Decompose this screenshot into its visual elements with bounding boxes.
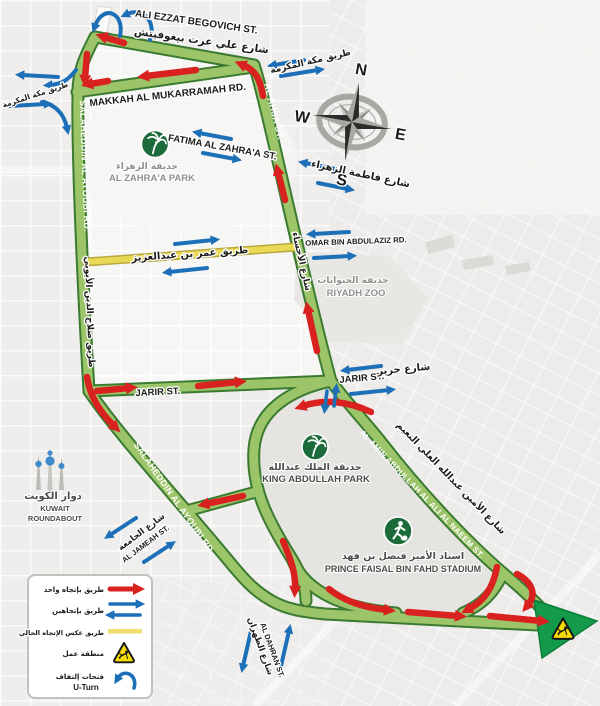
street-label-jarir-en-west: JARIR ST. bbox=[135, 386, 180, 399]
legend-u-turn-label-ar: فتحات إلتفاف bbox=[56, 673, 105, 681]
place-label-kuwait-ar: دوار الكويت bbox=[24, 491, 82, 502]
legend: طريق بإتجاه واحد طريق بإتجاهين طريق عكس … bbox=[19, 575, 152, 698]
place-label-stadium-ar: استاد الأمير فيصل بن فهد bbox=[342, 550, 464, 562]
legend-work-zone-label: منطقة عمل bbox=[63, 650, 104, 658]
traffic-map-canvas: N E S W ALI EZZAT BEGOVICH ST. شارع علي … bbox=[0, 0, 600, 706]
place-label-zahra-ar: حديقة الزهراء bbox=[116, 162, 178, 172]
place-label-zoo-en: RIYADH ZOO bbox=[327, 288, 386, 299]
legend-one-way-label: طريق بإتجاه واحد bbox=[44, 586, 105, 594]
legend-contraflow-label: طريق عكس الإتجاه الحالي bbox=[19, 629, 104, 637]
palm-icon bbox=[302, 434, 328, 460]
place-label-stadium-en: PRINCE FAISAL BIN FAHD STADIUM bbox=[325, 564, 481, 574]
place-label-kuwait-en1: KUWAIT bbox=[40, 504, 70, 513]
place-label-king-park-ar: حديقة الملك عبدالله bbox=[268, 462, 361, 473]
place-label-kuwait-en2: ROUNDABOUT bbox=[28, 514, 83, 523]
place-label-king-park-en: KING ABDULLAH PARK bbox=[262, 474, 370, 485]
legend-u-turn-label-en: U-Turn bbox=[73, 683, 99, 692]
football-player-icon bbox=[384, 517, 412, 545]
palm-icon bbox=[141, 130, 168, 157]
traffic-map: N E S W ALI EZZAT BEGOVICH ST. شارع علي … bbox=[0, 0, 600, 706]
place-label-zahra-en: AL ZAHRA'A PARK bbox=[109, 173, 195, 184]
legend-two-way-label: طريق بإتجاهين bbox=[52, 607, 104, 615]
place-label-zoo-ar: حديقة الحيوانات bbox=[317, 276, 388, 286]
contraflow-line-legend-icon bbox=[108, 629, 142, 634]
